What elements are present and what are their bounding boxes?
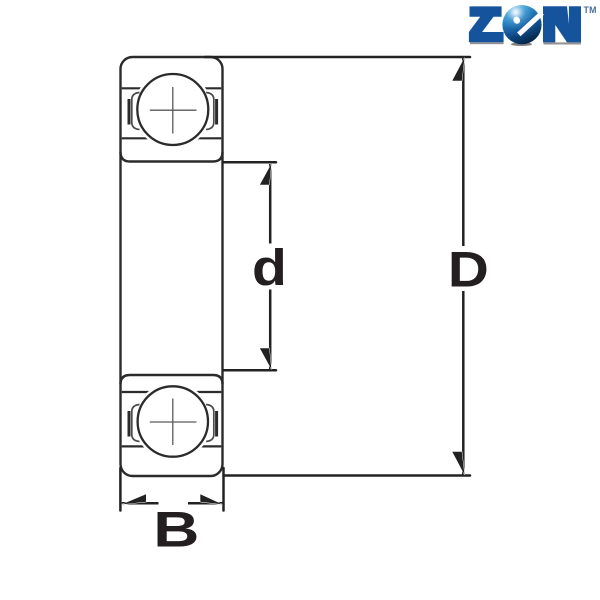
svg-text:D: D	[448, 243, 489, 298]
svg-text:B: B	[153, 502, 199, 558]
svg-text:TM: TM	[584, 5, 597, 15]
svg-text:d: d	[252, 240, 287, 297]
